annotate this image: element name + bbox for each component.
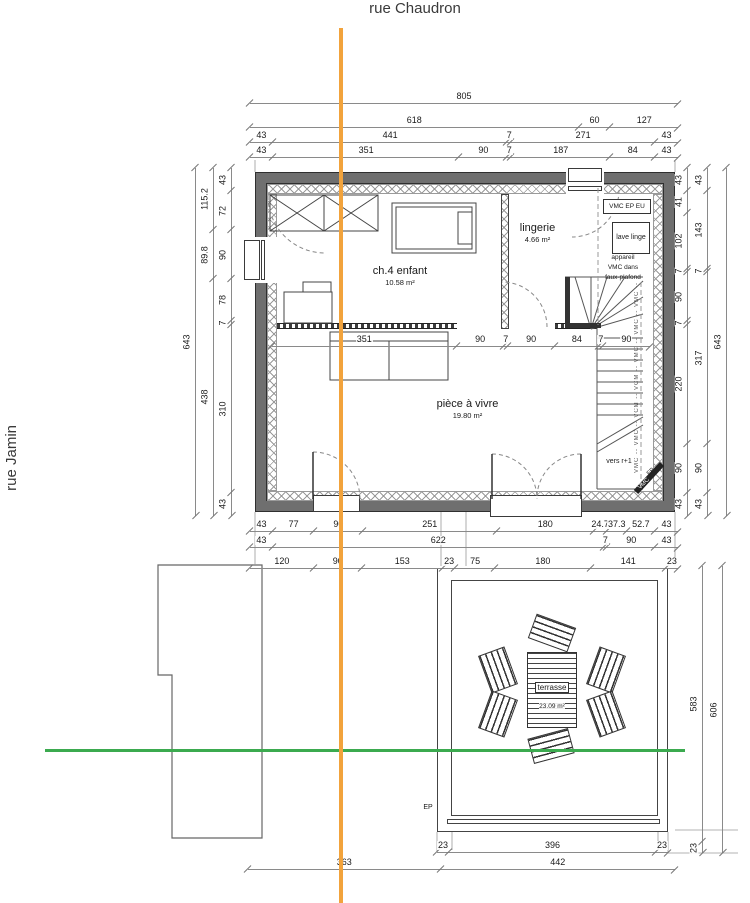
dim-segment: 90 [674,444,688,493]
dim-segment: 127 [610,114,678,128]
dim-row-interior: 3519079084790 [272,333,650,347]
dim-segment: 43 [218,493,232,516]
dim-value: 622 [430,536,447,545]
dim-value: 43 [255,146,267,155]
washing-machine-box: lave linge [612,222,650,254]
dim-segment: 141 [591,555,666,569]
dim-value: 442 [549,858,566,867]
dim-col-right-outer: 643 [713,168,727,516]
dim-segment: 363 [248,856,441,870]
dim-segment: 618 [250,114,579,128]
dim-segment: 24.7 [594,518,607,532]
floor-plan-canvas: rue Chaudron rue Jamin 805 61860127 4344… [0,0,750,903]
dim-segment: 90 [459,144,507,158]
dim-segment: 583 [689,566,703,842]
dim-value: 90 [477,146,489,155]
dim-value: 141 [620,557,637,566]
dim-value: 251 [421,520,438,529]
dim-segment: 90 [508,333,555,347]
neighbor-building-outline [158,565,262,838]
dim-segment: 622 [273,534,604,548]
dim-segment: 43 [655,144,678,158]
dim-col-site-inner: 58323 [689,566,703,853]
dim-value: 37.3 [607,520,627,529]
orange-axis-line [339,28,343,903]
room-label-terrace: terrasse 23.09 m² [512,677,592,713]
dim-value: 84 [571,335,583,344]
dim-value: 43 [255,536,267,545]
dim-value: 7 [506,146,513,155]
dim-value: 115.2 [200,187,209,211]
street-label-top: rue Chaudron [300,0,530,18]
entry-door-leaf [568,186,602,191]
room-label-living: pièce à vivre 19.80 m² [405,398,530,421]
dim-segment: 43 [250,534,273,548]
dim-col-left-outer: 643 [182,168,196,516]
dim-value: 90 [674,291,683,303]
dim-segment: 153 [362,555,443,569]
dim-value: 90 [674,462,683,474]
dim-value: 7 [506,131,513,140]
dim-segment: 643 [713,168,727,516]
dim-segment: 90 [674,272,688,321]
room-label-laundry: lingerie 4.66 m² [495,222,580,245]
dim-value: 43 [694,174,703,186]
dim-value: 351 [356,335,373,344]
dim-segment: 77 [273,518,314,532]
dim-value: 583 [689,696,698,713]
room-name: lingerie [495,222,580,235]
dim-value: 805 [455,92,472,101]
dim-segment: 37.3 [607,518,627,532]
dim-segment: 41 [674,191,688,213]
dim-segment: 438 [200,279,214,516]
dim-segment: 90 [694,444,708,493]
street-label-left: rue Jamin [2,425,20,545]
dim-value: 643 [182,333,191,350]
dim-segment: 43 [674,168,688,191]
dim-value: 23 [666,557,678,566]
dim-segment: 143 [694,191,708,268]
dim-segment: 251 [363,518,498,532]
vmc-ep-eu-box: VMC EP EU [603,199,651,214]
dim-segment: 351 [272,333,457,347]
dim-segment: 90 [607,534,655,548]
dim-value: 90 [625,536,637,545]
dim-segment: 84 [555,333,599,347]
dim-value: 43 [661,536,673,545]
dim-value: 77 [288,520,300,529]
dim-segment: 84 [610,144,655,158]
partition-living-stairs [555,323,597,329]
dim-value: 90 [620,335,632,344]
dim-segment: 43 [655,534,678,548]
door-opening-bottom-left [313,495,360,512]
dim-segment: 52.7 [627,518,655,532]
dim-segment: 43 [655,518,678,532]
dim-value: 7 [597,335,604,344]
dim-value: 438 [200,389,209,406]
dim-col-site-outer: 606 [709,566,723,853]
room-name: ch.4 enfant [340,265,460,278]
vmc-note-line3: faux-plafond [585,273,661,283]
dim-value: 102 [674,233,683,250]
dim-value: 143 [694,221,703,238]
room-area: 10.58 m² [340,278,460,288]
dim-value: 43 [218,174,227,186]
dim-value: 441 [382,131,399,140]
window-inner-face [261,240,265,280]
dim-value: 127 [636,116,653,125]
dim-value: 187 [552,146,569,155]
dim-segment: 23 [666,555,678,569]
room-area: 4.66 m² [495,235,580,245]
partition-laundry [501,194,509,329]
dim-value: 43 [674,174,683,186]
dim-value: 120 [273,557,290,566]
dim-row-top-4: 433519071878443 [250,144,678,158]
dim-segment: 43 [694,168,708,191]
dim-value: 43 [661,131,673,140]
vmc-duct-line: VMC -- VMC -- VCM -- VCM -- VMC -- VMC -… [634,282,647,487]
dim-segment: 317 [694,272,708,444]
dim-value: 90 [474,335,486,344]
dim-segment: 43 [218,168,232,191]
dim-row-terrace: 2339623 [437,839,668,853]
dim-value: 43 [660,520,672,529]
dim-value: 180 [534,557,551,566]
dim-segment: 442 [441,856,675,870]
dim-value: 643 [713,333,722,350]
dim-segment: 396 [449,839,656,853]
dim-row-top-3: 43441727143 [250,129,678,143]
dim-segment: 43 [250,129,273,143]
dim-segment: 89.8 [200,230,214,279]
dim-segment: 43 [250,144,273,158]
dim-segment: 310 [218,325,232,493]
vmc-note-line2: VMC dans [585,263,661,273]
dim-segment: 187 [511,144,610,158]
dim-value: 89.8 [200,245,209,265]
dim-value: 43 [218,498,227,510]
dim-segment: 351 [273,144,460,158]
dim-value: 153 [394,557,411,566]
dim-row-top-1: 805 [250,90,678,104]
dim-value: 78 [218,294,227,306]
dim-segment: 72 [218,191,232,230]
dim-value: 7 [502,335,509,344]
room-area: 23.09 m² [539,703,565,710]
dim-segment: 90 [457,333,504,347]
dim-value: 43 [694,498,703,510]
dim-value: 618 [406,116,423,125]
partition-living-bedroom [277,323,457,329]
dim-segment: 43 [250,518,273,532]
dim-col-left-mid: 115.289.8438 [200,168,214,516]
dim-segment: 102 [674,213,688,268]
dim-value: 23 [443,557,455,566]
dim-segment: 220 [674,325,688,444]
dim-value: 23 [437,841,449,850]
insulation-right [653,194,663,491]
dim-value: 606 [709,701,718,718]
dim-col-right-inner: 434110279072209043 [674,168,688,516]
dim-value: 52.7 [631,520,651,529]
vmc-duct-text: VMC -- VMC -- VCM -- VCM -- VMC -- VMC -… [634,282,640,473]
french-door-opening-bottom [490,495,582,517]
dim-value: 43 [661,146,673,155]
dim-segment: 805 [250,90,678,104]
dim-segment: 43 [655,129,678,143]
dim-value: 60 [589,116,601,125]
room-name: terrasse [535,682,570,693]
room-name: pièce à vivre [405,398,530,411]
dim-segment: 75 [455,555,495,569]
dim-value: 351 [358,146,375,155]
green-boundary-line [45,749,685,752]
dim-segment: 23 [656,839,668,853]
dim-value: 271 [575,131,592,140]
room-area: 19.80 m² [405,411,530,421]
dim-value: 90 [694,462,703,474]
dim-segment: 90 [314,555,362,569]
dim-value: 41 [674,196,683,208]
dim-value: 220 [674,376,683,393]
dim-segment: 120 [250,555,314,569]
dim-row-bottom-3: 12090153237518014123 [250,555,678,569]
dim-col-left-inner: 43729078731043 [218,168,232,516]
ep-site-label: EP [420,804,436,811]
dim-value: 317 [694,350,703,367]
dim-segment: 43 [694,493,708,516]
terrace-drain [447,819,660,824]
dim-col-right-mid: 4314373179043 [694,168,708,516]
dim-segment: 78 [218,279,232,321]
vmc-note: appareil VMC dans faux-plafond [585,253,661,283]
dim-segment: 90 [218,230,232,279]
window-frame-left [244,240,260,280]
street-label-left-text: rue Jamin [3,425,20,491]
vmc-note-line1: appareil [585,253,661,263]
dim-value: 396 [544,841,561,850]
dim-value: 75 [469,557,481,566]
dim-value: 23 [689,842,698,854]
dim-value: 310 [218,400,227,417]
dim-row-bottom-1: 43779025118024.737.352.743 [250,518,678,532]
dim-value: 180 [537,520,554,529]
dim-segment: 43 [674,493,688,516]
dim-segment: 643 [182,168,196,516]
room-label-bedroom: ch.4 enfant 10.58 m² [340,265,460,288]
entry-door-frame [568,168,602,182]
dim-segment: 180 [497,518,593,532]
dim-segment: 115.2 [200,168,214,230]
dim-row-bottom-2: 4362279043 [250,534,678,548]
dim-value: 90 [525,335,537,344]
dim-segment: 60 [579,114,611,128]
dim-segment: 180 [495,555,591,569]
dim-value: 23 [656,841,668,850]
dim-value: 84 [627,146,639,155]
dim-segment: 606 [709,566,723,853]
dim-value: 72 [218,205,227,217]
dim-value: 90 [218,249,227,261]
dim-row-site-bottom: 363442 [248,856,675,870]
dim-value: 43 [256,520,268,529]
dim-row-top-2: 61860127 [250,114,678,128]
dim-value: 43 [255,131,267,140]
dim-segment: 271 [511,129,655,143]
dim-segment: 23 [689,842,703,853]
dim-value: 43 [674,498,683,510]
dim-segment: 441 [273,129,507,143]
dim-value: 7 [602,536,609,545]
